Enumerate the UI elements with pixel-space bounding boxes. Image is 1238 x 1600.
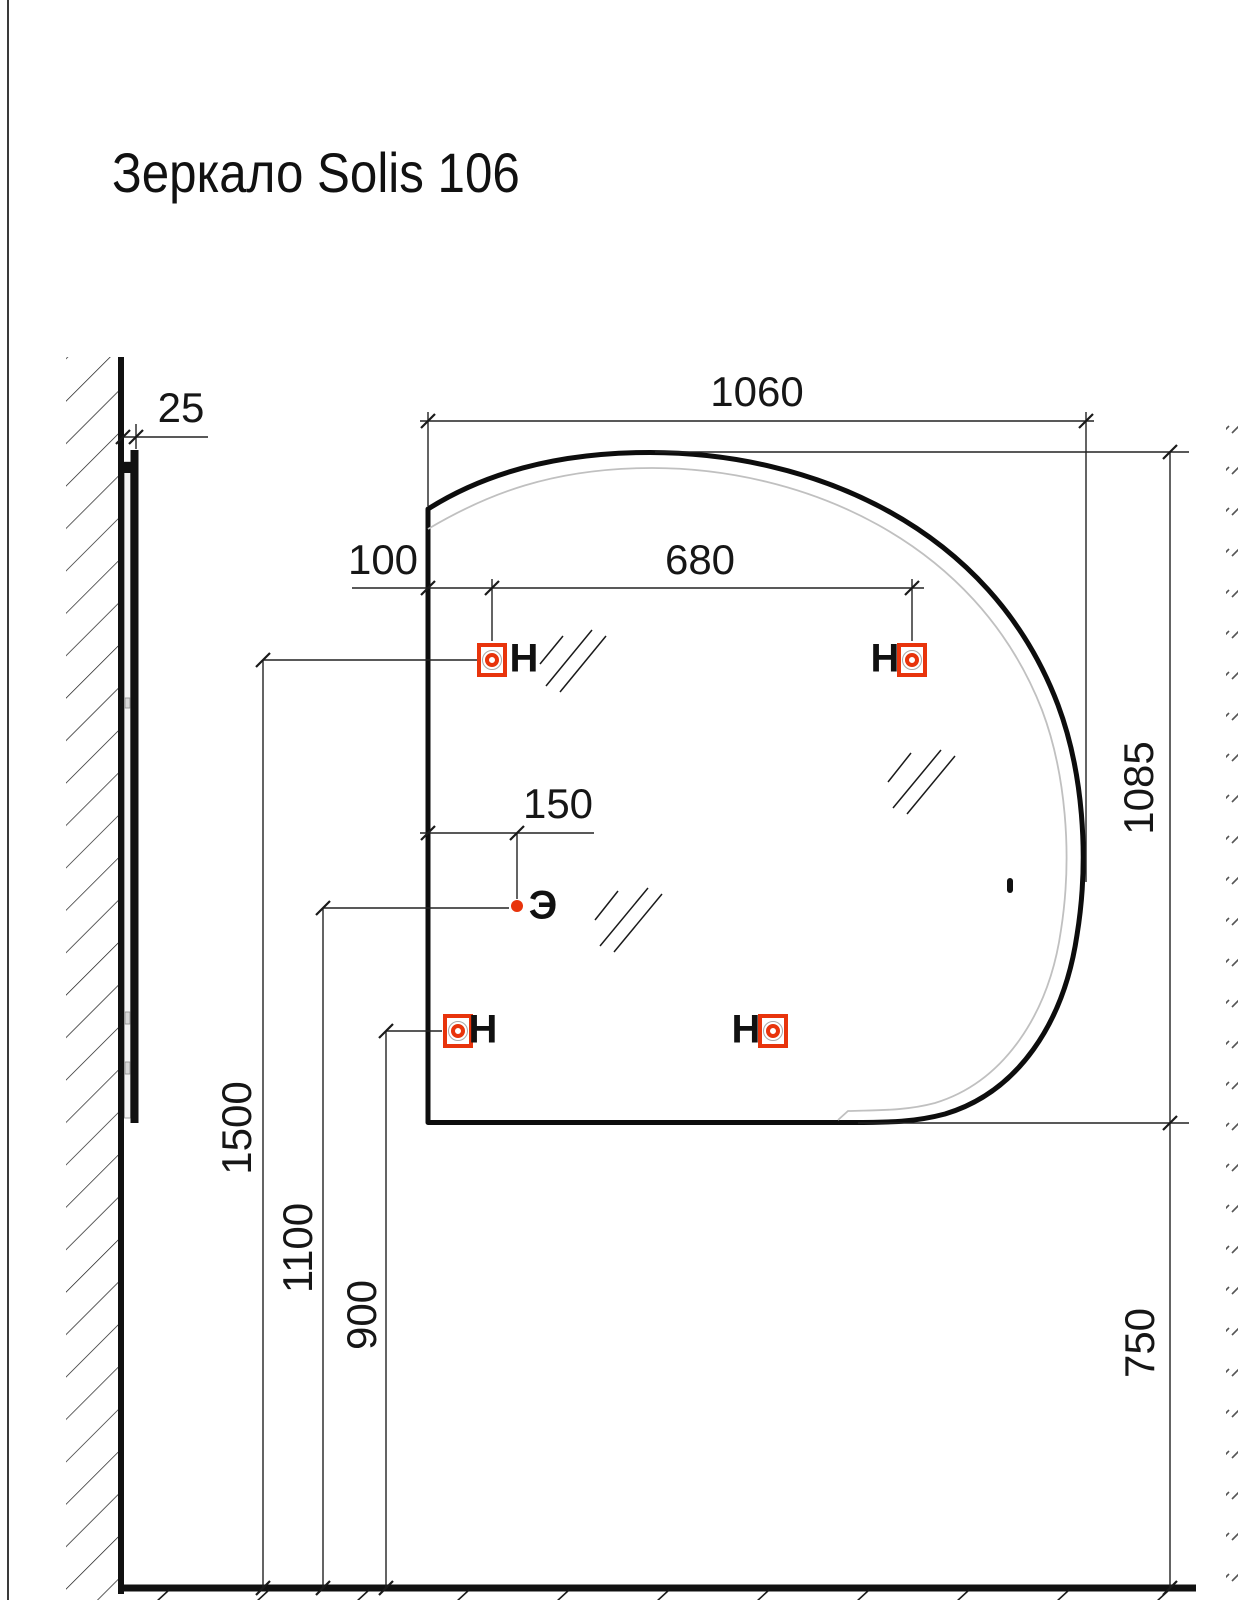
fastener-circle [448,1021,468,1041]
fastener-circle [763,1021,783,1041]
wall-hatch [66,357,122,1600]
fastener-ring [905,653,919,667]
dim-mirror-width-label: 1060 [710,368,803,416]
mirror-side-profile [124,450,139,1123]
dimension-ticks [116,414,1177,1595]
fastener-ring [766,1024,780,1038]
dim-hanger-left-offset-label: 100 [348,536,418,584]
fastener-circle [482,650,502,670]
hanger-point-icon [758,1014,788,1048]
electrical-marker-label: Э [529,884,557,929]
dimension-lines [122,412,1189,1588]
hanger-point-icon [897,643,927,677]
dim-outlet-height-label: 1100 [274,1203,322,1293]
dim-bottom-height-label: 750 [1116,1308,1164,1378]
page-title: Зеркало Solis 106 [112,140,520,205]
hanger-point-icon [477,643,507,677]
sheet-edge-ticks [1226,405,1238,1595]
hanger-marker-label: Н [871,637,900,682]
fastener-ring [485,653,499,667]
dim-lower-hangers-height-label: 900 [338,1280,386,1350]
fastener-circle [902,650,922,670]
dim-wall-offset-label: 25 [158,384,205,432]
blueprint-page: Зеркало Solis 106 25 1060 100 680 150 10… [0,0,1238,1600]
dim-hanger-spacing-label: 680 [665,536,735,584]
hanger-marker-label: Н [510,637,539,682]
hanger-marker-label: Н [469,1008,498,1053]
fastener-ring [451,1024,465,1038]
dim-outlet-offset-label: 150 [523,780,593,828]
dim-mirror-height-label: 1085 [1115,741,1163,834]
drawing-canvas [0,0,1238,1600]
sensor-mark-icon [1007,878,1013,893]
electrical-point-icon [511,900,523,912]
hanger-marker-label: Н [732,1008,761,1053]
dim-upper-hangers-height-label: 1500 [213,1081,261,1174]
